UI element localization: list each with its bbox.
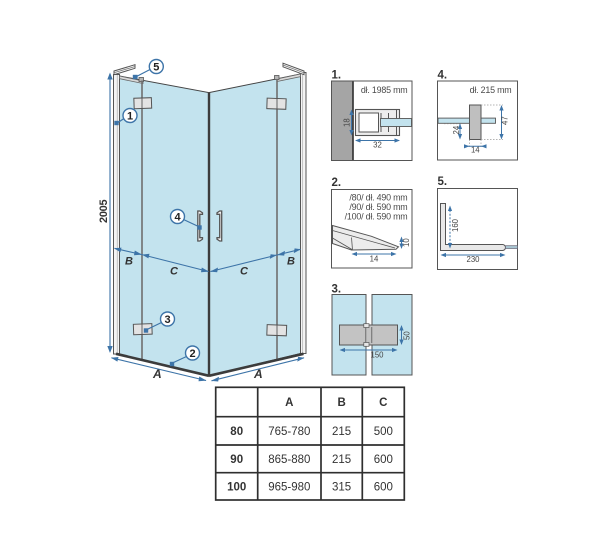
svg-text:10: 10 xyxy=(402,238,411,247)
svg-text:C: C xyxy=(379,397,387,409)
svg-text:14: 14 xyxy=(471,146,480,155)
svg-text:5.: 5. xyxy=(438,176,448,188)
svg-text:/100/ dł. 590 mm: /100/ dł. 590 mm xyxy=(345,212,408,222)
svg-text:B: B xyxy=(125,256,133,268)
svg-text:215: 215 xyxy=(332,454,351,466)
svg-text:18: 18 xyxy=(343,118,352,127)
svg-text:B: B xyxy=(337,397,345,409)
svg-text:80: 80 xyxy=(230,426,243,438)
svg-text:32: 32 xyxy=(373,141,382,150)
svg-text:24: 24 xyxy=(452,125,461,134)
svg-text:A: A xyxy=(152,367,162,381)
svg-text:315: 315 xyxy=(332,481,351,493)
svg-text:50: 50 xyxy=(403,331,412,340)
svg-text:14: 14 xyxy=(370,255,379,264)
svg-text:865-880: 865-880 xyxy=(268,454,310,466)
svg-text:90: 90 xyxy=(230,454,243,466)
svg-text:/90/ dł. 590 mm: /90/ dł. 590 mm xyxy=(349,202,407,212)
svg-text:965-980: 965-980 xyxy=(268,481,310,493)
svg-text:/80/ dł. 490 mm: /80/ dł. 490 mm xyxy=(349,193,407,203)
svg-text:B: B xyxy=(287,256,295,268)
svg-text:150: 150 xyxy=(370,351,384,360)
svg-text:3.: 3. xyxy=(332,284,342,296)
svg-text:5: 5 xyxy=(153,62,159,74)
svg-text:1: 1 xyxy=(127,111,133,123)
svg-text:47: 47 xyxy=(500,116,509,125)
svg-text:2: 2 xyxy=(189,348,195,360)
svg-text:4: 4 xyxy=(174,212,181,224)
svg-text:C: C xyxy=(240,266,249,278)
svg-text:230: 230 xyxy=(466,255,480,264)
svg-text:dł. 1985 mm: dł. 1985 mm xyxy=(361,85,408,95)
svg-text:215: 215 xyxy=(332,426,351,438)
svg-text:100: 100 xyxy=(227,481,246,493)
svg-text:500: 500 xyxy=(374,426,393,438)
svg-text:1.: 1. xyxy=(332,70,342,82)
svg-text:3: 3 xyxy=(164,314,170,326)
svg-text:765-780: 765-780 xyxy=(268,426,310,438)
svg-text:C: C xyxy=(170,266,179,278)
svg-text:A: A xyxy=(253,367,263,381)
svg-text:A: A xyxy=(285,397,293,409)
svg-text:2005: 2005 xyxy=(98,200,110,223)
svg-text:160: 160 xyxy=(451,218,460,232)
svg-text:dł. 215 mm: dł. 215 mm xyxy=(470,85,512,95)
svg-text:600: 600 xyxy=(374,481,393,493)
svg-text:2.: 2. xyxy=(332,177,342,189)
svg-text:4.: 4. xyxy=(438,70,448,82)
svg-text:600: 600 xyxy=(374,454,393,466)
